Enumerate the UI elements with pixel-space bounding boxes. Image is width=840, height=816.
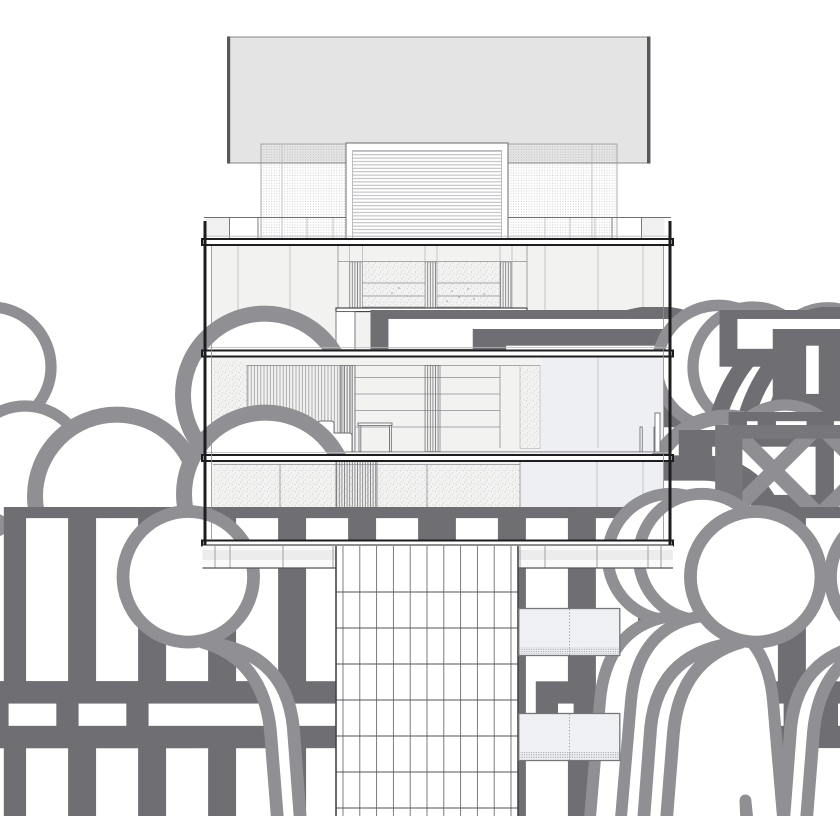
- roof-right-edge: [647, 37, 650, 164]
- tower-annex-box-1: [519, 609, 620, 656]
- floor-slab-4: [202, 541, 673, 546]
- louver-slats: [353, 151, 502, 241]
- bar-slat-column-2: [425, 262, 437, 310]
- roof-left-edge: [227, 37, 230, 164]
- louver-panel: [346, 143, 508, 240]
- lounge-stipple-panel-right: [520, 366, 540, 449]
- lounge-glass-wall: [540, 357, 664, 456]
- tower-annex-box-2: [519, 714, 620, 761]
- parapet-cell-left: [206, 218, 230, 236]
- annex-dot-strip: [520, 752, 619, 759]
- parapet-cell-right: [642, 218, 665, 236]
- lounge-slat-column-2: [425, 366, 440, 452]
- floor-slab-2: [202, 351, 673, 357]
- service-tower: [336, 546, 518, 816]
- bar-die: [336, 312, 355, 351]
- architectural-section-drawing: [0, 0, 840, 816]
- section-canvas: [0, 0, 840, 816]
- bar-slat-column-1: [350, 262, 363, 310]
- floor-slab-1: [202, 239, 673, 245]
- bar-slat-column-3: [500, 262, 512, 310]
- dining-chair: [0, 507, 79, 816]
- annex-dot-strip: [520, 647, 619, 654]
- floor-slab-3: [202, 455, 673, 461]
- back-bar-shelf-panel-1: [363, 262, 426, 309]
